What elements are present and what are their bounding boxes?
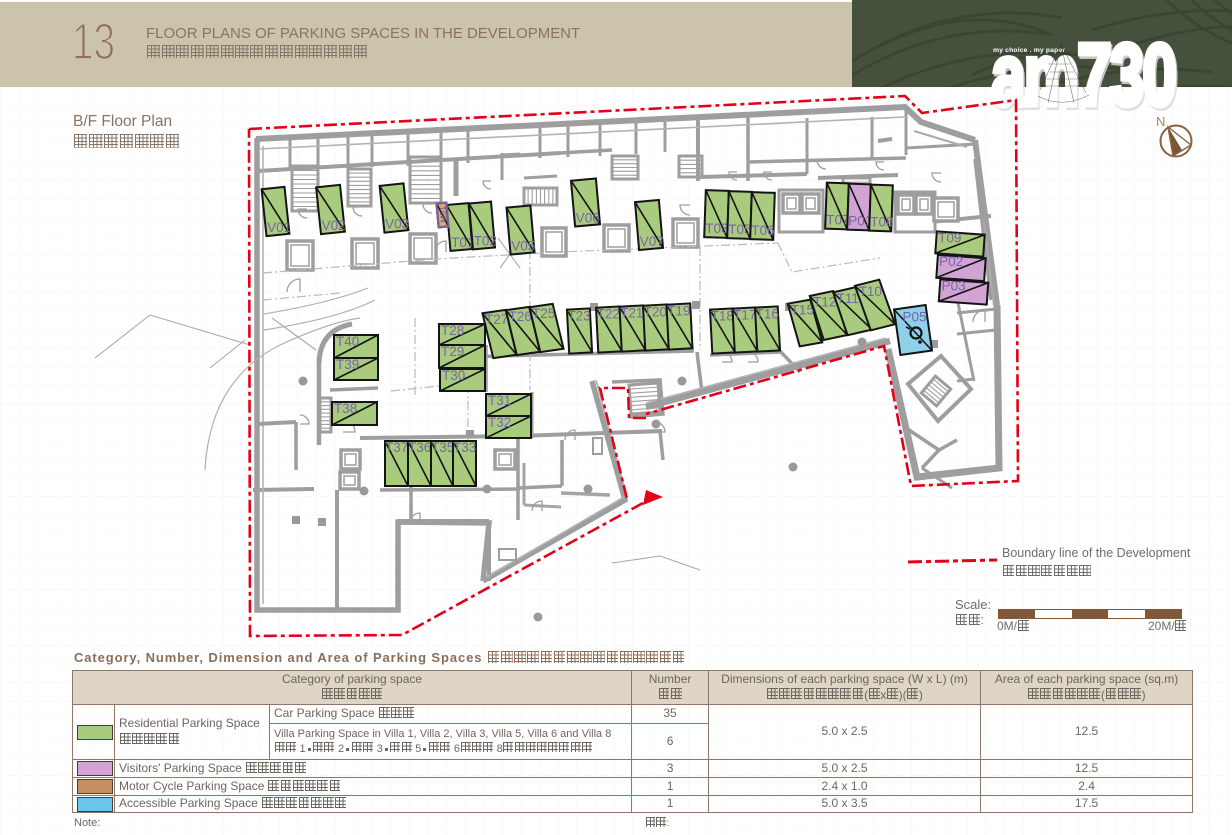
svg-text:T38: T38 <box>334 401 357 416</box>
svg-text:T29: T29 <box>441 344 464 359</box>
svg-text:N: N <box>1156 114 1165 129</box>
svg-text:T32: T32 <box>488 415 511 430</box>
svg-text:T07: T07 <box>826 213 849 228</box>
svg-text:T18: T18 <box>711 309 734 324</box>
svg-text:V01: V01 <box>267 220 291 235</box>
svg-text:T05: T05 <box>728 222 751 237</box>
svg-text:T11: T11 <box>837 291 859 306</box>
svg-text:T10: T10 <box>859 284 882 299</box>
svg-text:T20: T20 <box>644 305 667 320</box>
svg-text:T23: T23 <box>567 309 590 324</box>
svg-text:M01: M01 <box>437 205 448 223</box>
svg-text:T19: T19 <box>667 304 690 319</box>
svg-text:T15: T15 <box>791 302 814 317</box>
svg-text:P02: P02 <box>939 254 963 269</box>
svg-text:P03: P03 <box>942 279 966 294</box>
svg-text:V03: V03 <box>385 217 409 232</box>
svg-text:T28: T28 <box>441 323 464 338</box>
svg-text:T25: T25 <box>532 306 555 321</box>
svg-text:T12: T12 <box>813 295 836 310</box>
svg-text:T27: T27 <box>485 312 508 327</box>
svg-text:T33: T33 <box>453 440 476 455</box>
svg-text:V06: V06 <box>576 210 600 225</box>
svg-text:T26: T26 <box>509 309 532 324</box>
svg-text:T17: T17 <box>733 308 756 323</box>
svg-text:T02: T02 <box>474 233 497 248</box>
svg-text:T06: T06 <box>751 223 774 238</box>
svg-text:V05: V05 <box>511 238 535 253</box>
svg-text:T36: T36 <box>408 440 431 455</box>
svg-text:T22: T22 <box>597 307 620 322</box>
svg-text:V07: V07 <box>640 234 664 249</box>
svg-text:T30: T30 <box>442 368 465 383</box>
svg-text:T08: T08 <box>870 215 893 230</box>
svg-text:T39: T39 <box>336 357 359 372</box>
svg-text:T37: T37 <box>385 440 408 455</box>
svg-text:T09: T09 <box>938 231 961 246</box>
svg-text:P05: P05 <box>903 309 927 324</box>
svg-text:T31: T31 <box>488 393 511 408</box>
svg-text:T03: T03 <box>705 221 728 236</box>
svg-text:T40: T40 <box>336 334 359 349</box>
svg-text:T35: T35 <box>431 440 454 455</box>
svg-text:V02: V02 <box>322 218 346 233</box>
svg-text:T16: T16 <box>756 307 779 322</box>
svg-text:T21: T21 <box>620 306 643 321</box>
